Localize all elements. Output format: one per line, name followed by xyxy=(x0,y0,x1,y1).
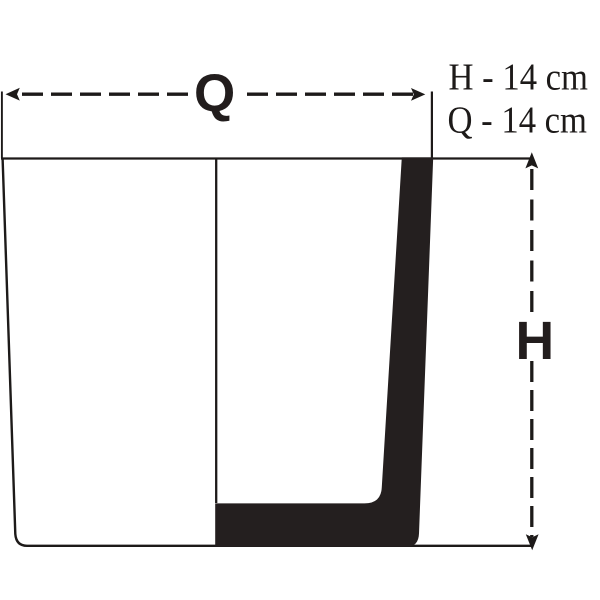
svg-text:H: H xyxy=(516,312,555,371)
svg-text:Q - 14 cm: Q - 14 cm xyxy=(448,99,588,141)
svg-text:H - 14 cm: H - 14 cm xyxy=(449,57,589,99)
svg-text:Q: Q xyxy=(194,64,235,123)
